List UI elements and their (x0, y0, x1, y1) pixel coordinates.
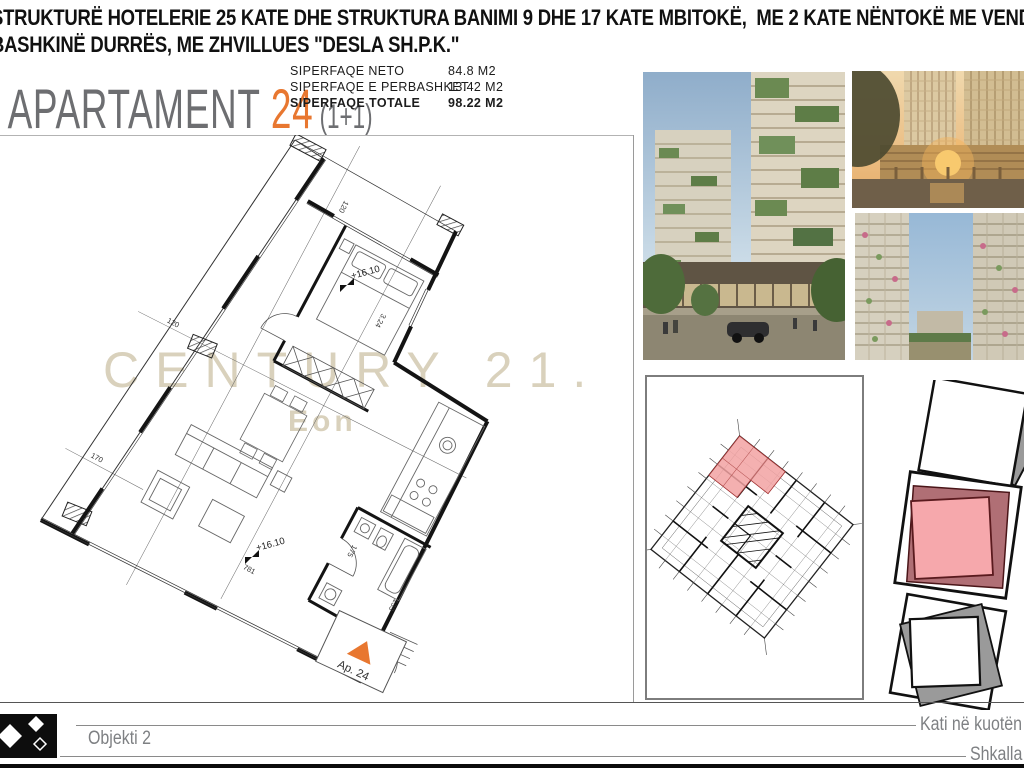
footer-divider (0, 702, 1024, 703)
kitchen-counter (381, 402, 485, 536)
area-row: SIPERFAQE E PERBASHKET 13.42 M2 (290, 80, 520, 96)
sunset-towers (904, 71, 1024, 149)
floor-plan-drawing: CENTURY 21. Eon (0, 135, 634, 702)
area-table: SIPERFAQE NETO 84.8 M2 SIPERFAQE E PERBA… (290, 64, 520, 112)
distant-buildings (909, 311, 971, 360)
area-value: 84.8 M2 (448, 64, 496, 78)
svg-text:120: 120 (166, 316, 181, 330)
footer-rule-1 (76, 725, 916, 726)
balcony-tower-left (855, 213, 909, 360)
site-building-top (919, 380, 1024, 486)
bottom-bar (0, 764, 1024, 768)
area-value: 13.42 M2 (448, 80, 503, 94)
century21-watermark: CENTURY 21. Eon (103, 342, 602, 438)
area-value: 98.22 M2 (448, 96, 503, 110)
level-marker: +16.10 (245, 536, 286, 564)
apartment-tag: Ap. 24 (316, 611, 407, 693)
site-building-bottom (890, 594, 1006, 710)
title-name: APARTAMENT (8, 77, 260, 140)
area-label: SIPERFAQE TOTALE (290, 96, 420, 110)
svg-text:781: 781 (242, 562, 257, 576)
scale-label: Shkalla 1: (970, 744, 1024, 766)
highlighted-unit (709, 436, 785, 511)
terrace (269, 136, 464, 277)
svg-text:3.24: 3.24 (373, 312, 388, 329)
balcony-tower-right (973, 213, 1024, 360)
floor-label: Kati në kuotën +16 (920, 714, 1024, 736)
tower-right (751, 72, 845, 264)
svg-text:CENTURY 21.: CENTURY 21. (103, 342, 602, 398)
brochure-page: STRUKTURË HOTELERIE 25 KATE DHE STRUKTUR… (0, 0, 1024, 768)
svg-text:120: 120 (337, 199, 351, 214)
object-label: Objekti 2 (88, 728, 163, 750)
area-label: SIPERFAQE E PERBASHKET (290, 80, 469, 94)
developer-logo (0, 714, 57, 758)
key-plan-box (645, 375, 864, 700)
site-building-highlighted (895, 472, 1021, 598)
svg-text:175: 175 (345, 544, 359, 559)
site-diagram (870, 380, 1024, 710)
render-photo-street (643, 72, 845, 360)
footer-rule-2 (60, 756, 966, 757)
svg-text:133: 133 (387, 597, 401, 612)
area-row: SIPERFAQE NETO 84.8 M2 (290, 64, 520, 80)
header-line-2: BASHKINË DURRËS, ME ZHVILLUES "DESLA SH.… (0, 31, 548, 58)
header-line-1: STRUKTURË HOTELERIE 25 KATE DHE STRUKTUR… (0, 4, 1024, 31)
svg-text:170: 170 (89, 451, 104, 465)
render-photo-sunset (852, 71, 1024, 208)
render-photo-towers (855, 213, 1024, 360)
area-row-total: SIPERFAQE TOTALE 98.22 M2 (290, 96, 520, 112)
area-label: SIPERFAQE NETO (290, 64, 404, 78)
svg-text:+16.10: +16.10 (255, 536, 286, 554)
